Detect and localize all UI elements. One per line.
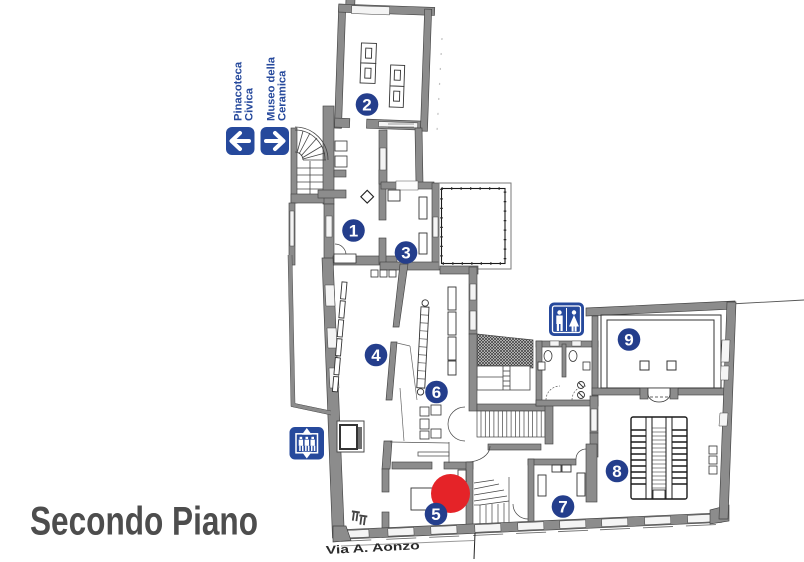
svg-text:3: 3 — [401, 244, 410, 263]
svg-text:1: 1 — [349, 222, 358, 241]
svg-text:9: 9 — [624, 331, 633, 350]
svg-text:PinacotecaCivica: PinacotecaCivica — [233, 61, 256, 121]
svg-text:7: 7 — [558, 498, 567, 517]
svg-text:Via A. Aonzo: Via A. Aonzo — [326, 540, 420, 557]
svg-text:Secondo Piano: Secondo Piano — [30, 500, 258, 544]
svg-text:4: 4 — [371, 346, 381, 365]
svg-text:6: 6 — [432, 383, 441, 402]
svg-text:2: 2 — [362, 96, 371, 115]
svg-text:Museo dellaCeramica: Museo dellaCeramica — [266, 56, 289, 121]
svg-text:8: 8 — [612, 462, 621, 481]
svg-text:5: 5 — [431, 505, 440, 524]
